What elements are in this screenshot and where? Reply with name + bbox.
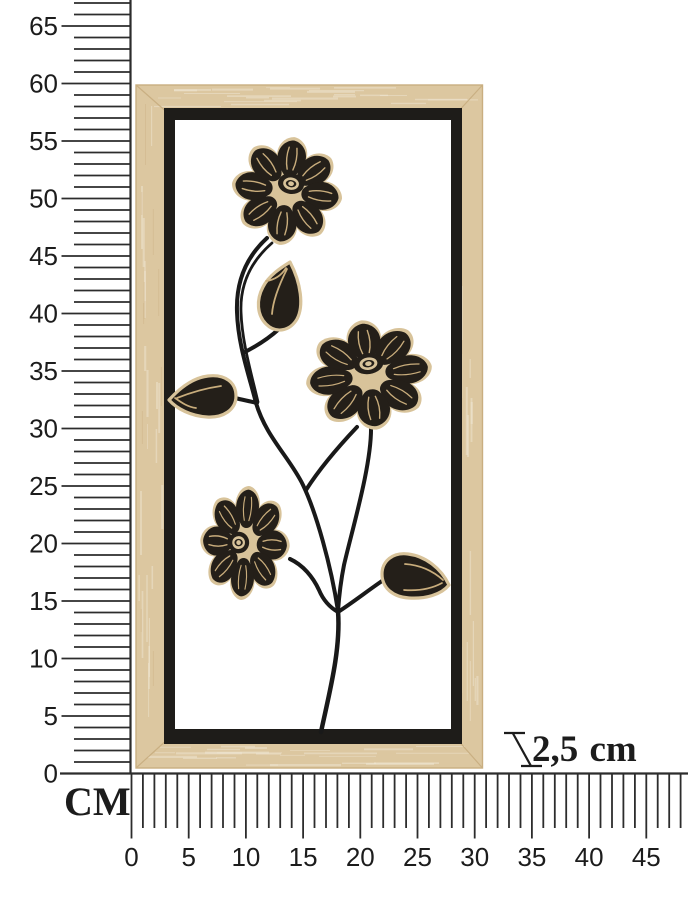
svg-text:10: 10 [231, 842, 260, 872]
svg-text:35: 35 [29, 356, 58, 386]
svg-text:20: 20 [29, 529, 58, 559]
svg-text:45: 45 [632, 842, 661, 872]
svg-text:40: 40 [29, 299, 58, 329]
svg-text:60: 60 [29, 69, 58, 99]
svg-text:15: 15 [289, 842, 318, 872]
svg-text:50: 50 [29, 184, 58, 214]
svg-text:30: 30 [29, 414, 58, 444]
svg-text:25: 25 [403, 842, 432, 872]
svg-text:25: 25 [29, 471, 58, 501]
svg-text:0: 0 [44, 759, 58, 789]
svg-text:15: 15 [29, 586, 58, 616]
svg-text:30: 30 [460, 842, 489, 872]
svg-text:55: 55 [29, 126, 58, 156]
svg-text:35: 35 [517, 842, 546, 872]
svg-text:40: 40 [575, 842, 604, 872]
svg-text:5: 5 [44, 701, 58, 731]
svg-text:5: 5 [181, 842, 195, 872]
svg-text:65: 65 [29, 11, 58, 41]
svg-text:0: 0 [124, 842, 138, 872]
svg-text:10: 10 [29, 644, 58, 674]
svg-text:2,5 cm: 2,5 cm [532, 729, 637, 770]
svg-text:CM: CM [64, 779, 131, 824]
svg-text:45: 45 [29, 241, 58, 271]
svg-text:20: 20 [346, 842, 375, 872]
